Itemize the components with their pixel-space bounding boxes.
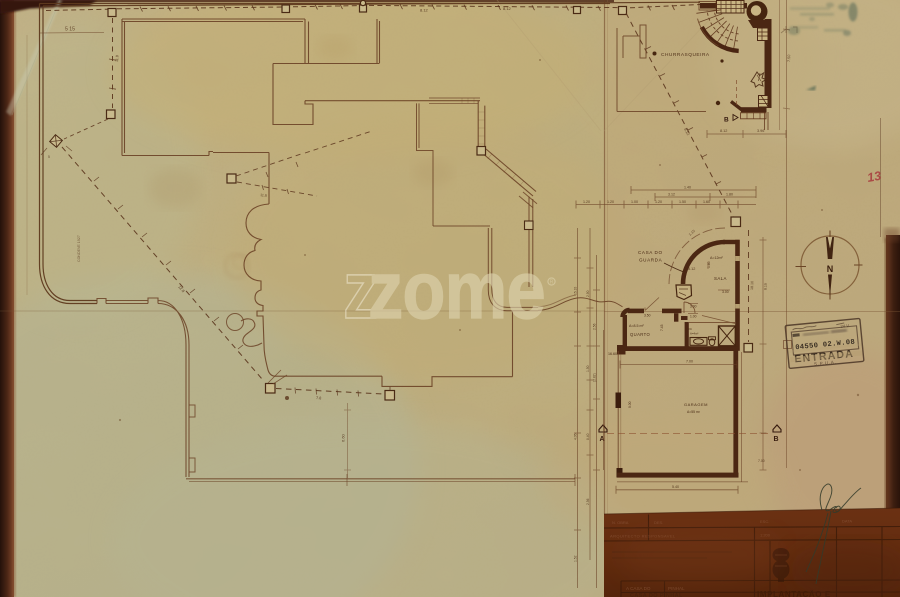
svg-text:5: 5 (48, 155, 50, 159)
svg-text:ESC.: ESC. (760, 519, 769, 524)
svg-text:(2.82): (2.82) (593, 373, 597, 382)
svg-text:7.00: 7.00 (686, 360, 693, 364)
svg-text:18.10: 18.10 (750, 281, 754, 290)
svg-text:A=4m²: A=4m² (690, 332, 698, 336)
svg-text:8.12: 8.12 (688, 267, 695, 271)
svg-text:GARAGEM: GARAGEM (684, 402, 708, 407)
svg-text:1.40: 1.40 (684, 186, 691, 190)
svg-text:3.96: 3.96 (757, 129, 764, 133)
svg-text:7.50: 7.50 (787, 55, 791, 63)
svg-text:1.80: 1.80 (707, 261, 711, 268)
svg-text:B: B (774, 436, 779, 443)
svg-text:A CASA DO: A CASA DO (626, 586, 651, 591)
svg-text:6.60: 6.60 (341, 433, 346, 442)
svg-text:11.8: 11.8 (115, 55, 119, 62)
svg-text:QUARTO: QUARTO (630, 332, 651, 337)
svg-text:8.10: 8.10 (764, 283, 768, 290)
svg-text:N. OBRA: N. OBRA (612, 520, 629, 525)
svg-text:1.50: 1.50 (679, 200, 686, 204)
svg-text:1.80: 1.80 (726, 193, 733, 197)
svg-text:2.56: 2.56 (586, 498, 590, 505)
svg-text:9.00: 9.00 (628, 401, 632, 408)
svg-text:3.50: 3.50 (644, 314, 651, 318)
svg-text:WC: WC (687, 327, 693, 331)
svg-text:5 15: 5 15 (65, 27, 75, 33)
svg-text:CASA DO PINHAL: CASA DO PINHAL (630, 593, 683, 597)
svg-text:DES.: DES. (654, 520, 663, 525)
svg-text:8.40: 8.40 (586, 433, 590, 440)
svg-text:24 V: 24 V (840, 323, 849, 329)
svg-text:7.00: 7.00 (758, 459, 765, 463)
svg-text:DATA: DATA (842, 519, 852, 524)
svg-text:1.52: 1.52 (574, 555, 578, 562)
svg-text:A=55 m²: A=55 m² (687, 410, 701, 414)
svg-text:1.60: 1.60 (703, 200, 710, 204)
svg-text:A=12m²: A=12m² (710, 256, 723, 260)
svg-text:CASA DO: CASA DO (638, 250, 663, 255)
svg-text:13: 13 (866, 169, 882, 185)
svg-text:7.8: 7.8 (316, 396, 322, 400)
svg-text:PINHAL: PINHAL (668, 586, 685, 591)
svg-text:CONDEVE 1927: CONDEVE 1927 (77, 235, 81, 262)
svg-text:B: B (724, 117, 729, 124)
svg-text:SALA: SALA (714, 276, 727, 281)
svg-text:8.12: 8.12 (420, 8, 429, 13)
svg-text:4.05: 4.05 (574, 433, 578, 440)
svg-text:N: N (827, 264, 834, 274)
svg-text:1.50: 1.50 (586, 365, 590, 372)
svg-text:CHURRASQUEIRA: CHURRASQUEIRA (661, 52, 710, 58)
svg-text:1.20: 1.20 (655, 200, 662, 204)
svg-text:GUARDA: GUARDA (639, 258, 663, 263)
svg-text:3.00: 3.00 (690, 305, 697, 309)
svg-text:8.12: 8.12 (503, 6, 512, 11)
svg-text:1.20: 1.20 (583, 200, 590, 204)
svg-text:15.10: 15.10 (574, 287, 578, 295)
svg-text:R: R (550, 280, 554, 286)
svg-text:1.00: 1.00 (690, 315, 697, 319)
svg-text:1.20: 1.20 (607, 200, 614, 204)
svg-text:7.45: 7.45 (660, 324, 664, 331)
svg-text:1.00: 1.00 (631, 200, 638, 204)
svg-text:2.90: 2.90 (586, 290, 590, 297)
svg-text:2.56: 2.56 (593, 323, 597, 330)
svg-text:16.60: 16.60 (608, 352, 617, 356)
svg-text:3.12: 3.12 (668, 193, 675, 197)
svg-text:5.40: 5.40 (672, 485, 679, 489)
svg-text:8.12: 8.12 (720, 129, 727, 133)
svg-text:zome: zome (368, 245, 545, 336)
svg-text:A=8.5 m²: A=8.5 m² (629, 324, 644, 328)
svg-text:3.00: 3.00 (722, 290, 729, 294)
